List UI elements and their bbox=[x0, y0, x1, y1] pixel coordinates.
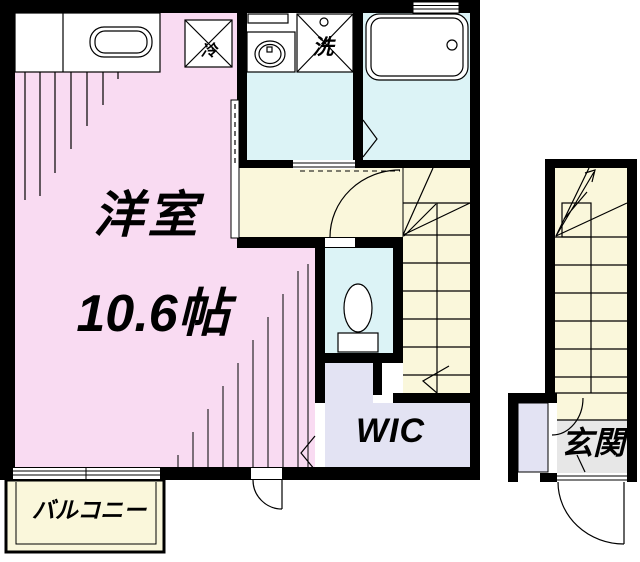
entrance-doorway bbox=[557, 473, 627, 482]
wall-washroom-bottom bbox=[237, 160, 480, 168]
bathroom-window bbox=[413, 2, 459, 13]
floor-plan-drawing bbox=[0, 0, 640, 562]
wall-right bbox=[470, 0, 480, 480]
toilet-tank bbox=[338, 333, 378, 352]
washer-faucet bbox=[320, 18, 328, 26]
wall-toilet-bottom bbox=[315, 353, 393, 363]
wall-ext-left bbox=[545, 159, 555, 403]
washroom-doorway bbox=[293, 160, 355, 169]
wall-wic-stub bbox=[373, 363, 382, 395]
main-room-floor-ext bbox=[237, 237, 322, 467]
basin-tap bbox=[267, 47, 272, 52]
wall-left bbox=[0, 0, 15, 480]
wall-hall-bottom bbox=[237, 237, 403, 248]
washroom-floor bbox=[245, 72, 353, 162]
main-room-size-label: 10.6帖 bbox=[28, 288, 278, 340]
wall-bath-divider bbox=[353, 13, 363, 160]
wall-top bbox=[0, 0, 480, 13]
toilet-bowl bbox=[344, 284, 372, 332]
wall-entry-stub-left bbox=[508, 393, 518, 482]
south-door bbox=[253, 480, 282, 509]
washing-machine-label: 洗 bbox=[309, 37, 337, 58]
wic-label: WIC bbox=[338, 414, 443, 448]
washbasin bbox=[247, 14, 295, 72]
toilet-doorway bbox=[325, 238, 355, 247]
wic-doorway bbox=[315, 403, 325, 467]
wall-stairs-bottom bbox=[393, 393, 480, 403]
main-room-label: 洋室 bbox=[55, 190, 240, 240]
shoe-cabinet bbox=[518, 403, 548, 472]
entrance-door-swing bbox=[558, 482, 624, 544]
wic-stub-gap bbox=[382, 363, 393, 390]
entry-hall-floor bbox=[557, 398, 627, 420]
wall-toilet-right bbox=[393, 237, 403, 363]
hallway-floor bbox=[240, 168, 403, 238]
floor-plan: 洋室 10.6帖 WIC 玄関 バルコニー 冷 洗 bbox=[0, 0, 640, 562]
entrance-label: 玄関 bbox=[552, 427, 634, 459]
wall-entry-stub-bottom bbox=[540, 473, 557, 482]
balcony-label: バルコニー bbox=[18, 499, 160, 522]
tub-drain bbox=[447, 40, 457, 50]
wall-ext-top bbox=[545, 159, 637, 168]
refrigerator-label: 冷 bbox=[196, 44, 222, 60]
south-doorway bbox=[251, 468, 282, 479]
